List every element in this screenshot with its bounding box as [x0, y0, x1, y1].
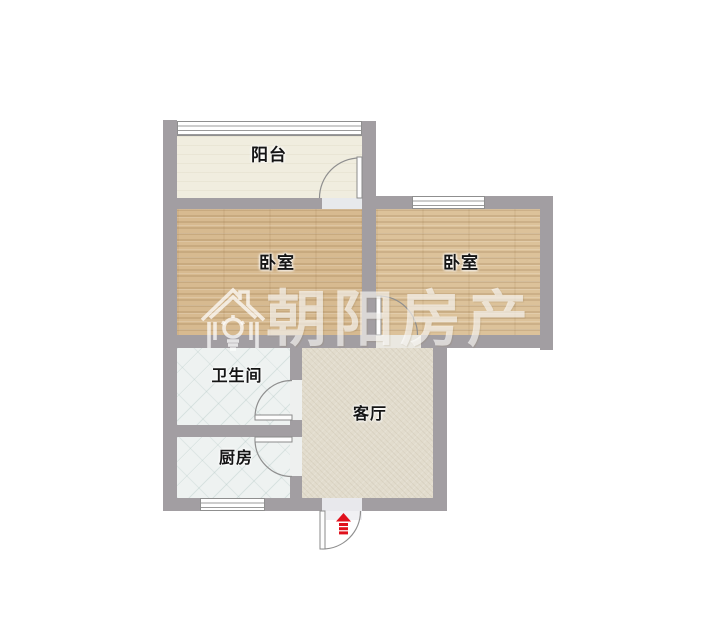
door-leaf-entrance [320, 511, 325, 549]
floorplan-canvas: 朝阳房产 阳台 卧室 卧室 卫生间 厨房 客厅 [0, 0, 720, 640]
wall-bathroom-kitchen [177, 425, 302, 437]
room-label-bathroom: 卫生间 [211, 362, 262, 386]
wall-bedroom-right-top [376, 196, 412, 209]
room-label-kitchen: 厨房 [219, 444, 253, 468]
wall-bottom [163, 498, 200, 511]
bathroom-floor [177, 348, 290, 425]
door-opening-entrance [322, 498, 362, 511]
wall-bottom [265, 498, 322, 511]
wall-balcony-bottom [163, 198, 322, 209]
room-label-balcony: 阳台 [251, 141, 287, 166]
door-opening-bathroom [290, 380, 302, 420]
window-kitchen [200, 498, 265, 511]
door-opening-balcony [322, 198, 362, 209]
window-bedroom-right [412, 196, 485, 209]
room-label-bedroom-right: 卧室 [443, 249, 479, 274]
window-balcony [177, 121, 362, 136]
wall-bedroom-right-side [540, 196, 553, 350]
room-label-living-room: 客厅 [353, 400, 387, 424]
entrance-threshold-shade [326, 511, 362, 520]
watermark-text: 朝阳房产 [266, 289, 534, 350]
room-label-bedroom-left: 卧室 [259, 249, 295, 274]
door-opening-kitchen [290, 437, 302, 476]
wall-living-right [433, 348, 447, 511]
wall-left [163, 120, 177, 511]
